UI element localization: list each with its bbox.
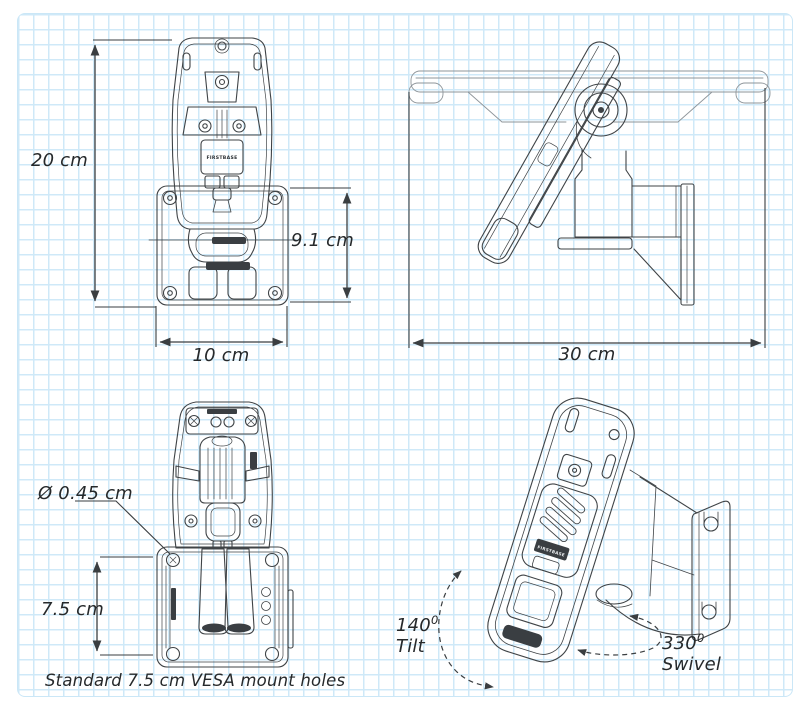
- tilt-value: 140: [396, 615, 431, 636]
- width-dimension: [156, 306, 287, 347]
- hole-diameter-leader: [75, 501, 170, 554]
- swivel-degree-sup: 0: [697, 631, 705, 645]
- side-view-drawing: [409, 37, 770, 305]
- hole-spacing-dimension: [97, 557, 153, 655]
- tilt-degree-sup: 0: [431, 613, 439, 627]
- height-dimension-label: 20 cm: [18, 151, 88, 172]
- bracket-height-dimension-label: 9.1 cm: [291, 231, 354, 252]
- rear-view-drawing: [157, 402, 293, 667]
- line-art-canvas: FIRSTBASE: [0, 0, 810, 710]
- plate-screw-bosses: [164, 192, 282, 300]
- hole-diameter-label: Ø 0.45 cm: [38, 484, 133, 505]
- tilt-word: Tilt: [396, 636, 425, 657]
- tilt-label: 1400 Tilt: [396, 610, 439, 657]
- vesa-caption: Standard 7.5 cm VESA mount holes: [45, 672, 345, 691]
- hole-spacing-label: 7.5 cm: [41, 600, 104, 621]
- depth-dimension-label: 30 cm: [551, 345, 623, 366]
- width-dimension-label: 10 cm: [186, 346, 256, 367]
- depth-dimension: [409, 88, 765, 348]
- tilt-arc-arrow: [439, 571, 493, 687]
- brand-label: FIRSTBASE: [206, 155, 237, 161]
- swivel-label: 3300 Swivel: [662, 628, 721, 675]
- swivel-value: 330: [662, 633, 697, 654]
- swivel-arc-arrow: [578, 616, 661, 655]
- technical-drawing-page: { "diagram": { "brand": "FIRSTBASE", "di…: [0, 0, 810, 710]
- height-dimension: [93, 40, 172, 307]
- swivel-word: Swivel: [662, 654, 721, 675]
- perspective-view-drawing: FIRSTBASE: [481, 391, 730, 668]
- front-view-drawing: FIRSTBASE: [149, 38, 296, 305]
